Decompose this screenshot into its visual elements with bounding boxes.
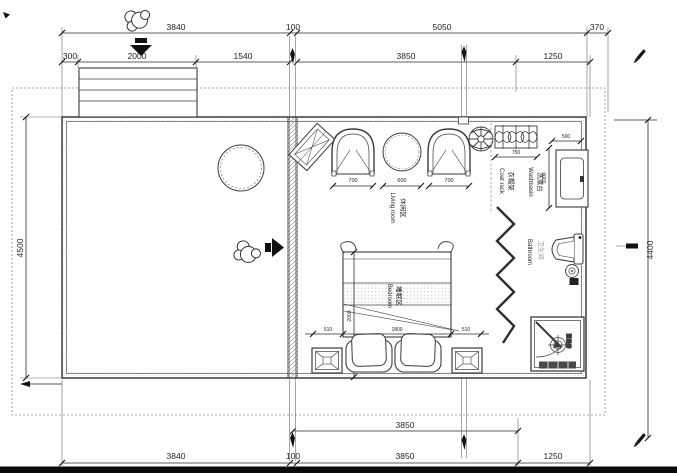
floor-plan-drawing: 3840 100 5050 370 300 2000 1540 3850 125…: [0, 0, 677, 473]
living-room-label-en: Living room: [389, 192, 395, 223]
dim-top-100: 100: [286, 22, 300, 32]
washbasin-label-en: Washbasin: [527, 167, 533, 196]
dim-top-3840: 3840: [167, 22, 186, 32]
coat-rack-label-en: Coat rack: [498, 168, 504, 195]
coat-rack-label-zh: 衣帽架: [507, 171, 516, 191]
living-room-label-zh: 休闲区: [399, 198, 408, 218]
dim-bed-510-right: 510: [462, 327, 471, 333]
wall-column: [459, 117, 469, 124]
dim-washbasin-500: 500: [562, 134, 571, 140]
armchair: [332, 129, 374, 176]
dim-bed-2000: 2000: [347, 310, 353, 321]
dim-bottom-1250: 1250: [544, 451, 563, 461]
dim-right-marker: [626, 244, 638, 249]
washbasin: [556, 150, 588, 207]
bedroom-label-en: Bedroom: [386, 284, 392, 308]
bedroom-label-zh: 睡眠区: [395, 286, 403, 306]
dim-table-600: 600: [397, 178, 406, 184]
dim-bottom-3850-inner: 3850: [396, 420, 415, 430]
dim-top-1540: 1540: [234, 51, 253, 61]
ceiling-fan-icon: [469, 127, 493, 151]
dim-bottom-100: 100: [286, 451, 300, 461]
shower-mat: [539, 362, 576, 369]
dim-top-3850: 3850: [397, 51, 416, 61]
dim-top-300: 300: [63, 51, 77, 61]
dim-bed-510-left: 510: [324, 327, 333, 333]
armchair: [428, 129, 470, 176]
shower-stall: 淋浴房: [531, 317, 584, 371]
dim-top-370: 370: [590, 22, 604, 32]
bottom-border-band: [0, 467, 677, 473]
dim-bottom-3840: 3840: [167, 451, 186, 461]
dim-right-4400: 4400: [645, 240, 655, 259]
coffee-table: [383, 133, 421, 171]
round-table: [218, 145, 264, 191]
nightstand: [452, 348, 482, 373]
dim-bed-1800: 1800: [391, 327, 402, 333]
bathroom-label-zh: 卫生间: [537, 240, 546, 260]
nightstand: [312, 348, 342, 373]
entry-stairs: [79, 68, 197, 117]
shower-label-zh: 淋浴房: [565, 333, 572, 348]
dim-chair-700: 700: [348, 178, 357, 184]
dim-top-1250: 1250: [544, 51, 563, 61]
bathroom-label-en: Bathroom: [526, 239, 532, 265]
dim-chair-700b: 700: [444, 178, 453, 184]
dim-coat-rack-750: 750: [512, 150, 521, 156]
washbasin-label-zh: 洗漱台: [536, 172, 545, 192]
dim-top-5050: 5050: [433, 22, 452, 32]
dim-bottom-3850: 3850: [396, 451, 415, 461]
dim-left-4500: 4500: [15, 238, 25, 257]
